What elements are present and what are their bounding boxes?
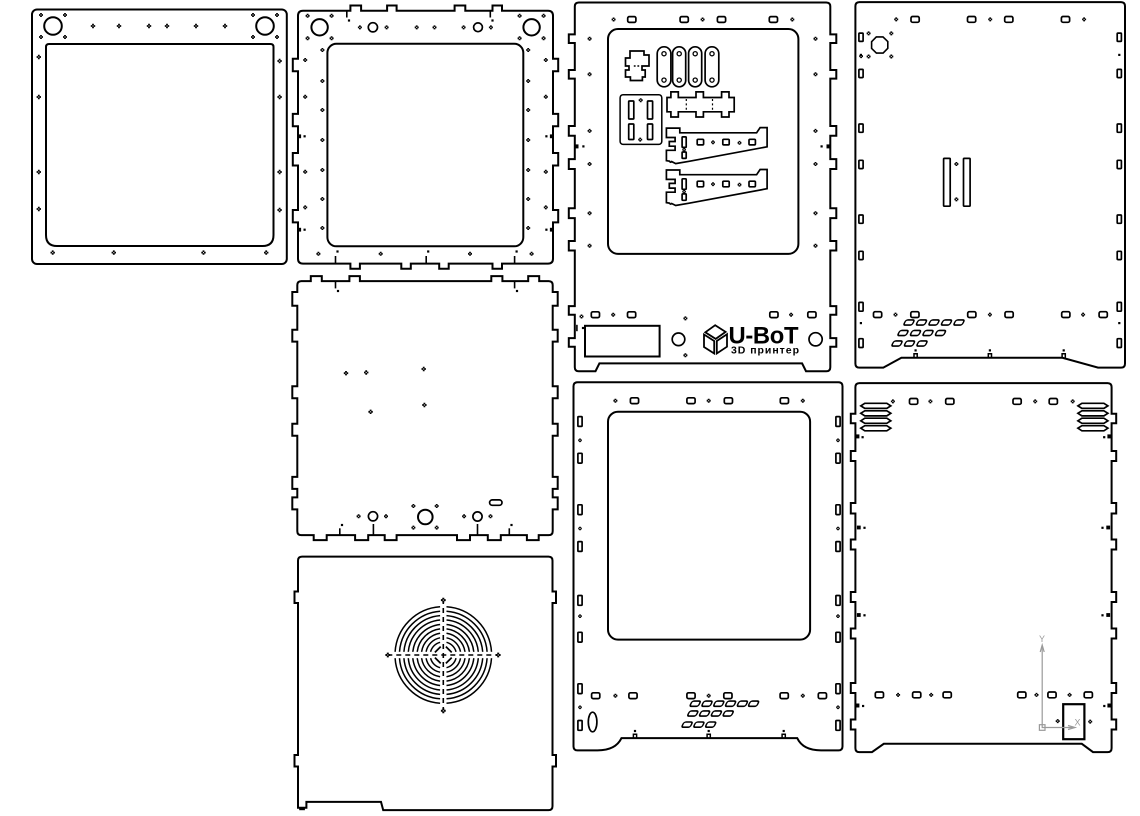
- svg-text:3D принтер: 3D принтер: [731, 345, 799, 357]
- svg-text:Y: Y: [1039, 634, 1045, 644]
- svg-text:X: X: [1075, 718, 1081, 728]
